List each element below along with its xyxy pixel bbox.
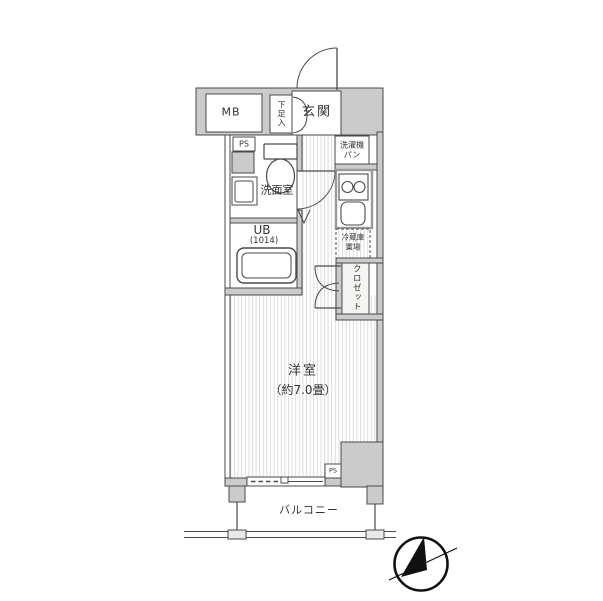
toilet-tank [264,144,297,159]
closet-label: クロゼット [352,264,361,312]
stove-burner-right-icon [354,182,365,193]
left-wall [225,135,230,478]
stove-burner-left-icon [342,182,353,193]
balcony-label: バルコニー [279,505,339,518]
pipe-space-upper-label: PS [239,139,249,148]
unit-bath-south-wall [225,288,302,295]
western-room-size-label: （約7.0畳） [269,384,336,398]
bathtub-inner [242,253,291,278]
refrigerator-space-label-line2: 置場 [346,244,361,253]
washing-machine-pan-label-line1: 洗濯機 [340,140,364,149]
washing-machine-pan-label-line2: パン [344,150,360,159]
washbasin-bowl [235,181,253,202]
balcony-right-foot-block [366,530,384,539]
entrance-door-arc [297,48,337,88]
right-wall [377,132,383,442]
washroom-label: 洗面室 [261,185,294,198]
mb-label: MB [221,107,240,120]
bottom-wall-mid [325,478,341,486]
balcony-left-foot-block [228,530,246,539]
entrance-label: 玄関 [302,106,332,121]
hallway-floor [302,135,335,295]
closet-left-wall [336,263,342,314]
balcony-left-column [229,486,245,502]
floorplan: MB 下足入 玄関 PS 洗面室 洗濯機 パン UB (1014) 冷蔵庫 置場… [0,0,603,601]
shaft-box [232,152,254,173]
kitchen-sink [341,202,365,225]
closet-bottom-wall [336,314,383,320]
washroom-east-wall-upper [297,135,302,171]
pipe-space-lower-label: PS [329,467,337,474]
closet-top-wall [336,258,383,263]
shoe-cabinet-label: 下足入 [277,101,285,128]
compass-icon [389,537,457,591]
corner-column-block [341,442,383,487]
window-divider [281,477,288,483]
refrigerator-space-label-line1: 冷蔵庫 [342,234,365,243]
balcony-right-column [367,486,383,504]
western-room-label: 洋室 [288,365,318,380]
bottom-wall-left [225,478,247,486]
unit-bath-size-label: (1014) [250,237,278,247]
washroom-east-wall-lower [297,210,302,295]
